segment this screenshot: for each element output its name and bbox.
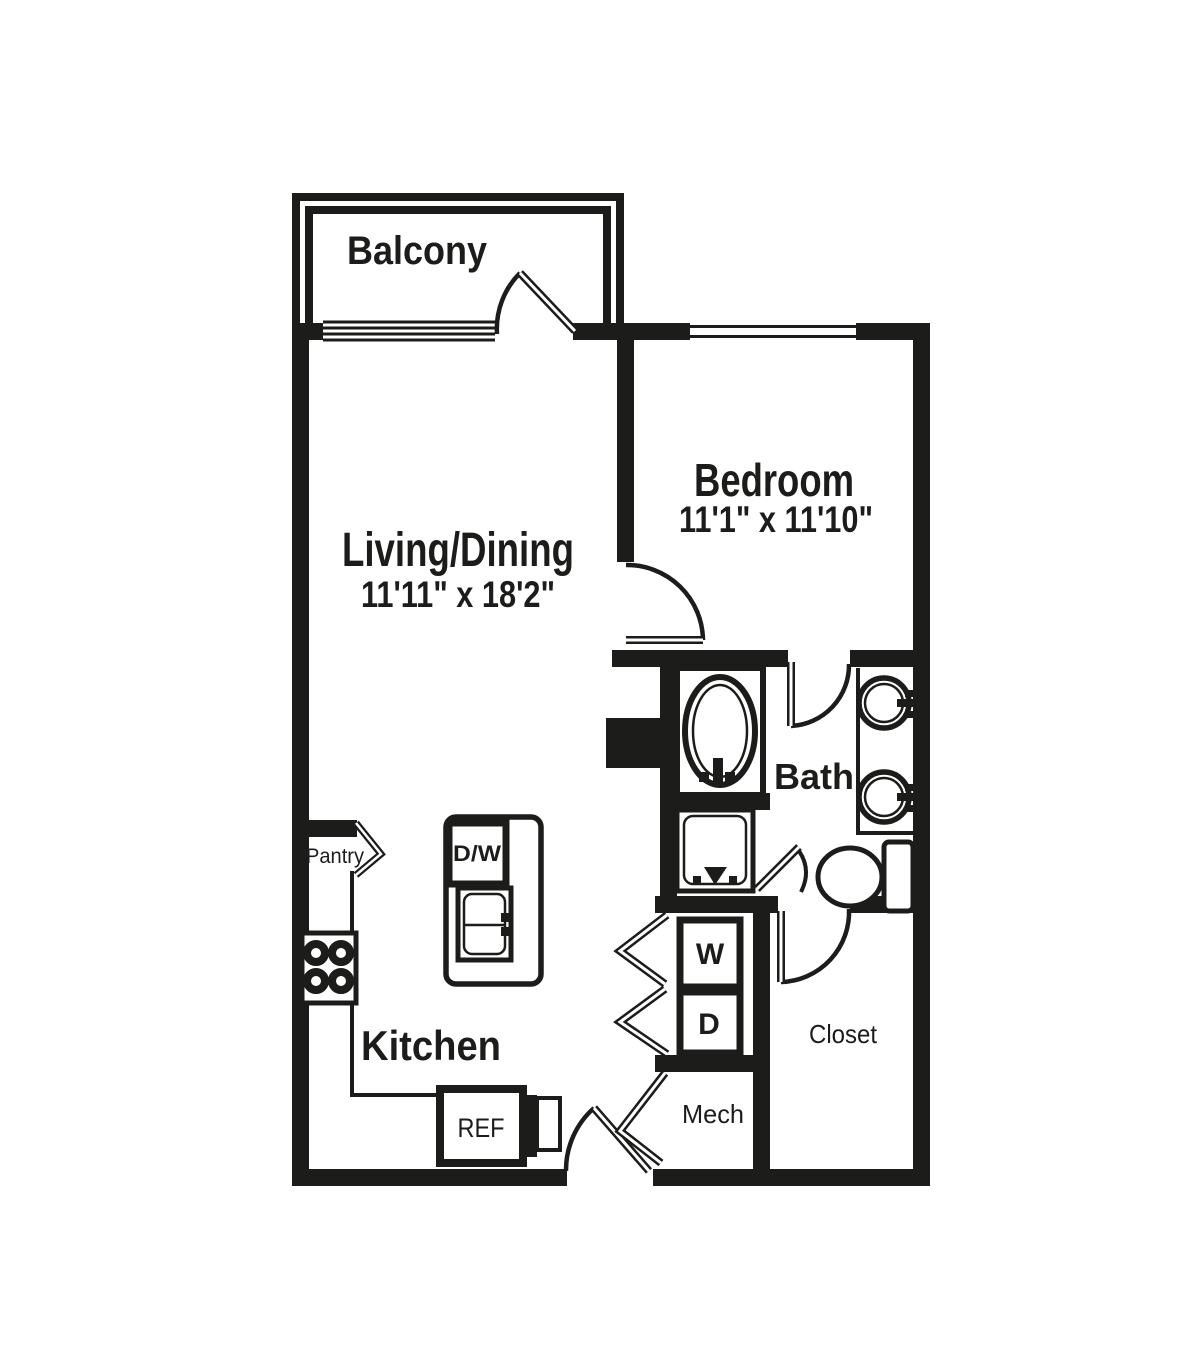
wall-left — [292, 323, 309, 1186]
stove-icon — [302, 933, 356, 1003]
balcony-swing-door — [497, 273, 575, 334]
vanity-counter — [858, 668, 914, 833]
wall-top-corner — [292, 323, 323, 340]
room-label-living-dining: Living/Dining — [342, 524, 574, 577]
shower-icon — [677, 810, 753, 891]
wall-top-mid — [573, 323, 687, 340]
room-label-bath: Bath — [774, 756, 854, 797]
appliance-label-refrigerator: REF — [458, 1113, 505, 1143]
room-dimensions-living-dining: 11'11" x 18'2" — [361, 574, 555, 615]
appliance-label-dryer: D — [698, 1008, 720, 1041]
wall-pantry — [309, 820, 357, 837]
room-label-pantry: Pantry — [306, 845, 364, 868]
bedroom-window — [687, 323, 859, 340]
appliance-label-washer: W — [696, 938, 725, 971]
toilet-icon — [818, 842, 913, 911]
kitchen-fixtures — [302, 817, 560, 1163]
wall-bath-top-left — [612, 650, 788, 667]
bath-door — [791, 662, 849, 726]
closet-door — [781, 909, 849, 982]
room-label-balcony: Balcony — [347, 229, 488, 273]
sink-icon — [859, 772, 914, 822]
floor-plan: Balcony Living/Dining 11'11" x 18'2" Bed… — [0, 0, 1202, 1352]
entry-cabinet — [522, 1095, 560, 1157]
bathtub-icon — [677, 668, 763, 795]
wall-right — [913, 323, 930, 1186]
wall-bedroom-partition — [617, 340, 634, 562]
wall-shower-bottom — [655, 896, 778, 913]
room-label-closet: Closet — [809, 1019, 878, 1049]
floor-plan-page: Balcony Living/Dining 11'11" x 18'2" Bed… — [0, 0, 1202, 1352]
wall-bottom-right — [653, 1169, 930, 1186]
wall-plumbing-chase — [606, 718, 660, 768]
shower-door — [757, 847, 806, 892]
wall-bath-left-lower — [660, 810, 677, 896]
wall-bottom-left — [292, 1169, 567, 1186]
balcony-sliding-door — [323, 322, 495, 340]
sink-icon — [859, 678, 914, 728]
bedroom-door — [626, 565, 703, 640]
wall-mech-top — [655, 1055, 753, 1072]
laundry-bifold-doors — [620, 915, 667, 1054]
room-dimensions-bedroom: 11'1" x 11'10" — [679, 499, 873, 540]
appliance-label-dishwasher: D/W — [453, 841, 501, 866]
room-label-kitchen: Kitchen — [361, 1022, 501, 1069]
wall-laundry-closet-divider — [753, 913, 770, 1169]
room-label-mech: Mech — [682, 1099, 744, 1129]
wall-bath-top-right — [850, 650, 913, 667]
